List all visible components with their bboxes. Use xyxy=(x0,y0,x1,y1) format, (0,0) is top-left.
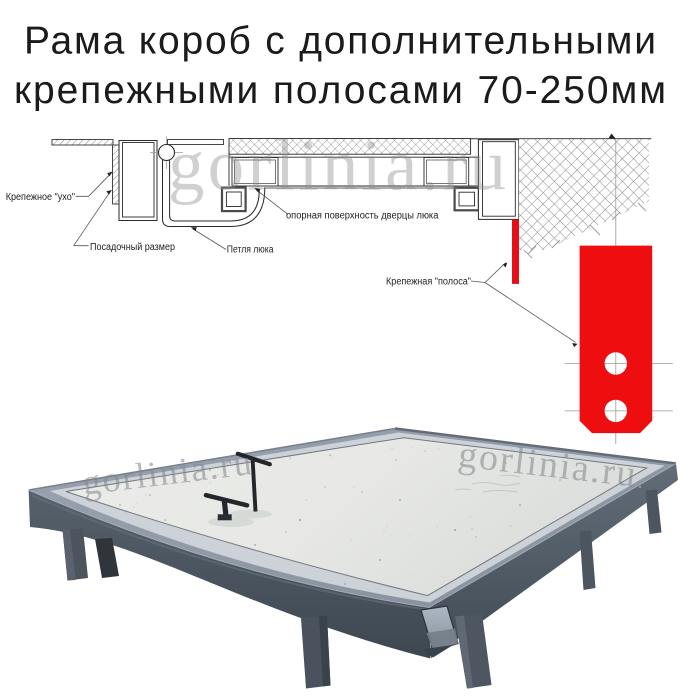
svg-text:крепежными полосами 70-250мм: крепежными полосами 70-250мм xyxy=(14,69,666,112)
svg-text:опорная поверхность дверцы люк: опорная поверхность дверцы люка xyxy=(286,211,439,222)
svg-text:Посадочный размер: Посадочный размер xyxy=(90,242,175,253)
svg-text:Рама короб с дополнительными: Рама короб с дополнительными xyxy=(24,19,656,62)
svg-text:Крепежная "полоса": Крепежная "полоса" xyxy=(386,277,471,288)
svg-text:Крепежное "ухо": Крепежное "ухо" xyxy=(6,192,76,203)
svg-text:Петля люка: Петля люка xyxy=(227,245,274,256)
svg-text:gorlinia.ru: gorlinia.ru xyxy=(168,124,506,205)
